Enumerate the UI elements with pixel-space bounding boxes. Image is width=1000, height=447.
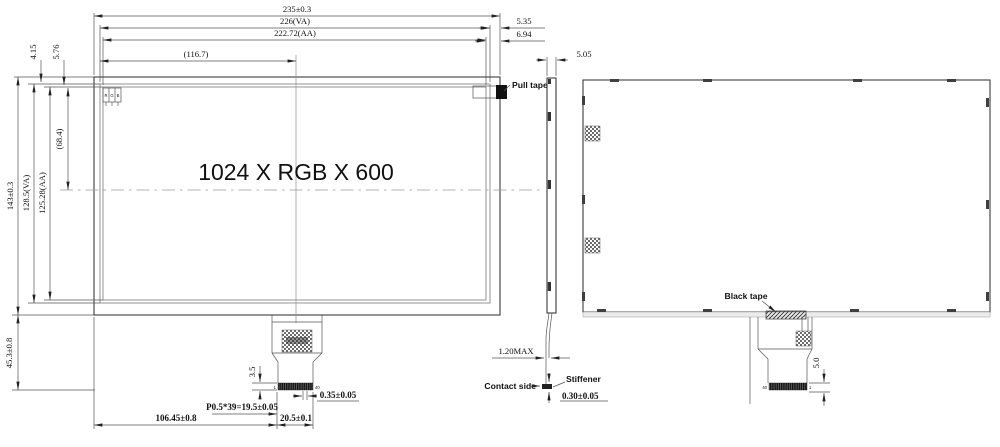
dim-aa-right-gap: 6.94 <box>516 29 532 39</box>
front-top-dimensions: 235±0.3 226(VA) 222.72(AA) (116.7) 5.35 … <box>94 4 545 85</box>
side-tape-tab-2 <box>548 180 551 189</box>
dim-aa-height: 125.28(AA) <box>37 172 47 214</box>
dim-fpc-thickness: 1.20MAX <box>498 346 534 356</box>
pull-tape-block <box>496 85 507 99</box>
drawing-canvas: 1024 X RGB X 600 R G B Pull tape <box>0 0 1000 447</box>
front-view: 1024 X RGB X 600 R G B Pull tape <box>4 4 548 429</box>
side-stiffener-block <box>542 384 552 389</box>
resolution-title: 1024 X RGB X 600 <box>198 159 394 185</box>
dim-pin-pitch: P0.5*39=19.5±0.05 <box>206 402 278 412</box>
contact-side-label: Contact side <box>484 381 536 391</box>
dim-aa-width: 222.72(AA) <box>274 28 316 38</box>
front-module-outline <box>94 77 500 315</box>
back-tape-pad-2 <box>585 238 600 253</box>
side-thickness-dimension: 5.05 <box>536 49 592 76</box>
back-contact-fingers <box>769 383 807 390</box>
dim-aa-top-gap: 5.76 <box>51 44 61 60</box>
dim-total-width: 235±0.3 <box>283 4 311 14</box>
back-component-area <box>796 331 811 346</box>
pin1-back: 1 <box>809 385 812 390</box>
dim-back-stiffener-height: 5.0 <box>811 358 821 369</box>
dim-stiffener-thickness: 0.30±0.05 <box>562 391 599 401</box>
front-fpc-tail: 1 40 <box>272 315 322 390</box>
dim-va-width: 226(VA) <box>280 16 310 26</box>
fpc-contact-fingers <box>278 383 313 390</box>
subpixel-b-label: B <box>117 93 120 98</box>
stiffener-label: Stiffener <box>566 374 602 384</box>
pin40-back: 40 <box>762 385 767 390</box>
dim-va-right-gap: 5.35 <box>516 16 531 26</box>
back-tape-pad-1 <box>585 126 600 141</box>
side-tape-tab-1 <box>548 112 551 121</box>
back-stiffener-dimension: 5.0 <box>809 358 830 406</box>
dim-fpc-width: 20.5±0.1 <box>280 413 312 423</box>
dim-total-height: 143±0.3 <box>5 182 15 210</box>
side-fpc-tail <box>542 313 552 389</box>
dim-stiffener-height-front: 3.5 <box>247 367 257 378</box>
black-tape-strip <box>766 311 806 319</box>
front-left-dimensions: 143±0.3 128.5(VA) 125.28(AA) (68.4) 4.15… <box>4 44 103 390</box>
back-module-outline <box>583 80 990 312</box>
lcd-outline-drawing: 1024 X RGB X 600 R G B Pull tape <box>0 0 1000 447</box>
dim-va-height: 128.5(VA) <box>21 175 31 212</box>
dim-half-height: (68.4) <box>54 128 64 149</box>
side-tape-tab-top <box>548 79 551 84</box>
dim-bottom-height: 45.3±0.8 <box>4 338 14 369</box>
dim-thickness: 5.05 <box>576 49 591 59</box>
dim-fpc-offset: 106.45±0.8 <box>156 413 197 423</box>
dim-finger-width: 0.35±0.05 <box>320 390 357 400</box>
side-fpc-thickness-dimension: 1.20MAX <box>492 346 570 358</box>
pull-tape-label: Pull tape <box>512 80 548 90</box>
front-bottom-dimensions: 106.45±0.8 20.5±0.1 P0.5*39=19.5±0.05 0.… <box>94 317 359 429</box>
dim-va-top-gap: 4.15 <box>28 44 38 59</box>
back-view: Black tape 40 1 5.0 <box>582 79 990 406</box>
side-tape-tab-3 <box>548 282 551 291</box>
dim-half-width: (116.7) <box>184 49 209 59</box>
fpc-print-area <box>286 337 308 344</box>
subpixel-g-label: G <box>110 93 113 98</box>
subpixel-r-label: R <box>104 93 107 98</box>
pin1-front: 1 <box>274 385 277 390</box>
back-fpc-tail: 40 1 <box>750 317 812 404</box>
black-tape-label: Black tape <box>725 291 768 301</box>
